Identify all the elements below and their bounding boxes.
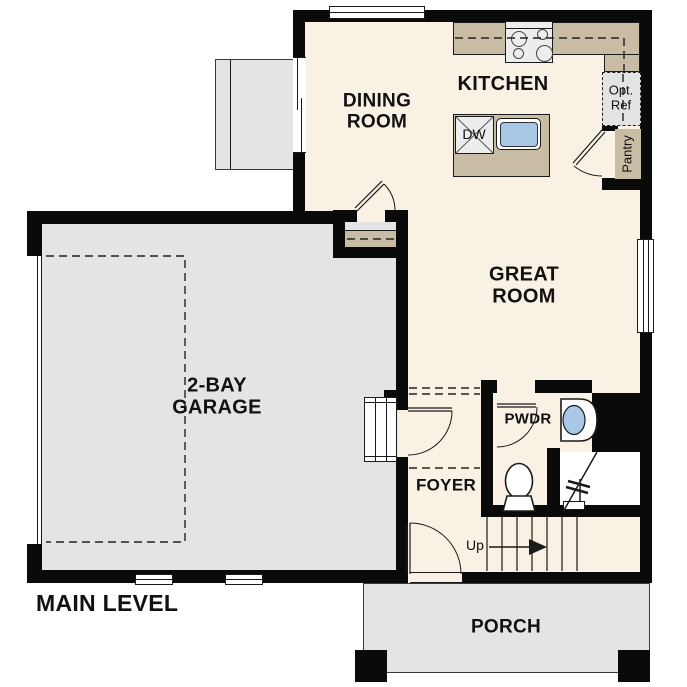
room-label-garage: 2-BAY GARAGE xyxy=(172,375,262,420)
up-arrow-icon xyxy=(489,539,547,555)
room-label-powder: PWDR xyxy=(504,412,551,429)
pantry-door-icon xyxy=(573,130,605,176)
plan-title: MAIN LEVEL xyxy=(36,591,178,617)
room-label-great-room: GREAT ROOM xyxy=(489,264,559,309)
floor-plan: DINING ROOM KITCHEN GREAT ROOM 2-BAY GAR… xyxy=(0,0,687,687)
label-pantry: Pantry xyxy=(621,135,636,173)
front-door-icon xyxy=(407,523,461,574)
garage-door-overhead-dashed xyxy=(46,256,185,542)
stair-break-icon xyxy=(563,452,597,512)
powder-sink-icon xyxy=(561,399,597,441)
upper-cabinet-dashed xyxy=(455,38,624,71)
label-dishwasher: DW xyxy=(462,127,485,143)
closet-door-icon xyxy=(355,181,395,211)
room-label-kitchen: KITCHEN xyxy=(458,73,549,95)
label-opt-ref: Opt. Ref xyxy=(609,83,634,112)
toilet-icon xyxy=(503,464,535,512)
label-up: Up xyxy=(466,538,484,554)
garage-entry-door-icon xyxy=(408,408,452,455)
room-label-dining: DINING ROOM xyxy=(343,91,411,134)
room-label-porch: PORCH xyxy=(471,616,541,637)
room-label-foyer: FOYER xyxy=(416,475,476,494)
